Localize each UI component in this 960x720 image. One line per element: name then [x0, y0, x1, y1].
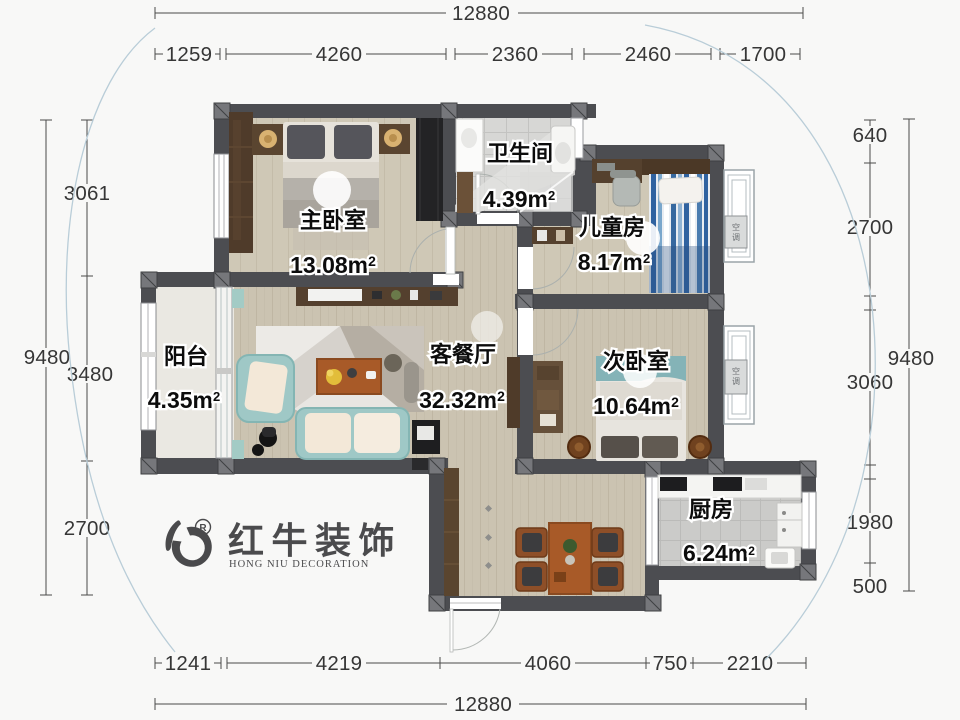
- svg-text:2700: 2700: [64, 517, 110, 540]
- svg-text:3480: 3480: [67, 363, 113, 386]
- svg-text:6.24m2: 6.24m2: [683, 540, 755, 566]
- svg-text:主卧室: 主卧室: [300, 208, 366, 233]
- svg-text:调: 调: [732, 377, 740, 386]
- svg-text:客餐厅: 客餐厅: [430, 342, 496, 367]
- svg-text:2360: 2360: [492, 43, 538, 66]
- svg-text:500: 500: [853, 575, 888, 598]
- svg-text:卫生间: 卫生间: [487, 141, 553, 166]
- svg-text:4.39m2: 4.39m2: [483, 186, 555, 212]
- svg-text:红牛装饰: 红牛装饰: [228, 520, 402, 561]
- svg-text:640: 640: [853, 124, 888, 147]
- svg-text:2210: 2210: [727, 652, 773, 675]
- svg-text:4.35m2: 4.35m2: [148, 387, 220, 413]
- svg-text:2460: 2460: [625, 43, 671, 66]
- svg-text:4219: 4219: [316, 652, 362, 675]
- svg-text:调: 调: [732, 233, 740, 242]
- svg-text:13.08m2: 13.08m2: [290, 252, 376, 278]
- svg-text:750: 750: [653, 652, 688, 675]
- svg-text:2700: 2700: [847, 216, 893, 239]
- svg-text:次卧室: 次卧室: [603, 349, 669, 374]
- svg-text:阳台: 阳台: [164, 344, 208, 369]
- svg-text:1980: 1980: [847, 511, 893, 534]
- svg-text:3061: 3061: [64, 182, 110, 205]
- svg-text:厨房: 厨房: [689, 497, 733, 522]
- svg-text:12880: 12880: [452, 2, 510, 25]
- svg-text:4060: 4060: [525, 652, 571, 675]
- svg-text:3060: 3060: [847, 371, 893, 394]
- svg-text:32.32m2: 32.32m2: [419, 387, 505, 413]
- svg-text:HONG NIU DECORATION: HONG NIU DECORATION: [229, 559, 369, 570]
- svg-text:空: 空: [732, 366, 740, 376]
- svg-text:1241: 1241: [165, 652, 211, 675]
- svg-text:12880: 12880: [454, 693, 512, 716]
- svg-text:空: 空: [732, 222, 740, 232]
- svg-text:4260: 4260: [316, 43, 362, 66]
- svg-text:1259: 1259: [166, 43, 212, 66]
- svg-text:儿童房: 儿童房: [578, 215, 645, 240]
- svg-text:1700: 1700: [740, 43, 786, 66]
- svg-text:10.64m2: 10.64m2: [593, 393, 679, 419]
- svg-text:9480: 9480: [888, 347, 934, 370]
- svg-text:8.17m2: 8.17m2: [578, 249, 650, 275]
- svg-text:R: R: [199, 523, 207, 534]
